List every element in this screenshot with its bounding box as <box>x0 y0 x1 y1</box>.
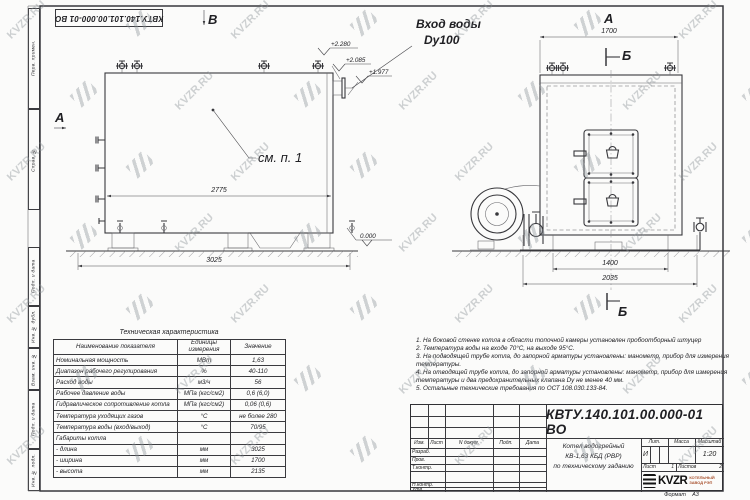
spec-table: Наименование показателя Единицы измерени… <box>53 339 286 478</box>
spec-col-header: Наименование показателя <box>54 340 178 355</box>
boiler-front-view: В А <box>54 10 482 270</box>
scale-header: Масштаб <box>695 438 724 446</box>
spec-cell: мм <box>178 444 231 455</box>
staff-utv: Утв. <box>412 487 444 492</box>
spec-row: - высотамм2135 <box>54 466 286 477</box>
spec-cell: Расход воды <box>54 377 178 388</box>
spec-col-header: Единицы измерения <box>178 340 231 355</box>
see-note-callout: см. п. 1 <box>212 109 303 165</box>
note-item-1: 1. На боковой стенке котла в области топ… <box>416 337 737 345</box>
spec-cell <box>178 433 231 444</box>
base-frame-side <box>520 235 700 250</box>
section-mark-b-top: Б <box>606 48 631 66</box>
spec-row: Температура воды (вход/выход)°С70/95 <box>54 422 286 433</box>
door-lock-icon <box>607 147 619 159</box>
staff-prov: Пров. <box>412 456 444 464</box>
base-frame-front <box>108 233 334 251</box>
rev-col-podp: Подп. <box>493 438 519 448</box>
spec-row: Диапазон рабочего регулирования%40-110 <box>54 366 286 377</box>
safety-valve-icon <box>664 63 676 75</box>
inlet-callout: Вход воды Dy100 <box>352 17 482 88</box>
note-item-2: 2. Температура воды на входе 70°С, на вы… <box>416 345 737 353</box>
rev-col-list: Лист <box>428 438 445 448</box>
elevation-zero: 0.000 <box>360 233 376 240</box>
side-view-a-label: А <box>603 11 613 26</box>
spring-logo-icon <box>643 474 656 488</box>
safety-valve-icon <box>557 63 569 75</box>
spec-cell: 70/95 <box>231 422 286 433</box>
spec-cell: 56 <box>231 377 286 388</box>
svg-text:2035: 2035 <box>601 275 618 282</box>
note-item-4: 4. На отводящей трубе котла, до запорной… <box>416 369 737 385</box>
water-inlet-flange <box>332 66 358 98</box>
svg-text:3025: 3025 <box>206 257 222 264</box>
technical-notes: 1. На боковой стенке котла в области топ… <box>416 337 737 393</box>
spec-cell: Номинальная мощность <box>54 355 178 366</box>
safety-valve-icon <box>258 61 270 73</box>
elevation-2085: +2.085 <box>346 57 366 64</box>
spec-row: Температура уходящих газов°Сне более 280 <box>54 410 286 421</box>
boiler-side-view: А 1700 Б <box>452 11 730 319</box>
safety-valve-icon <box>131 61 143 73</box>
spec-cell: °С <box>178 422 231 433</box>
drain-valves <box>117 221 355 233</box>
staff-razrab: Разраб. <box>412 448 444 456</box>
spec-col-header: Значение <box>231 340 286 355</box>
spec-row: - длинамм3025 <box>54 444 286 455</box>
spec-cell: - высота <box>54 466 178 477</box>
note-item-5: 5. Остальные технические требования по О… <box>416 385 737 393</box>
note-item-3: 3. На подводящей трубе котла, до запорно… <box>416 353 737 369</box>
spec-row: - ширинамм1700 <box>54 455 286 466</box>
dim-2775: 2775 <box>107 187 331 196</box>
spec-row: Габариты котла <box>54 433 286 444</box>
spec-cell: Гидравлическое сопротивление котла <box>54 399 178 410</box>
company-subtitle: КОТЕЛЬНЫЙ ЗАВОД РЭП <box>689 476 714 486</box>
scale-value: 1:20 <box>695 446 724 463</box>
spec-cell: Рабочее давление воды <box>54 388 178 399</box>
doc-number: КВТУ.140.101.00.000-01 ВО <box>546 405 724 438</box>
left-nozzles <box>96 137 105 225</box>
company-name: KVZR <box>658 475 687 487</box>
spec-cell: МПа (кгс/см2) <box>178 388 231 399</box>
spec-table-block: Техническая характеристика Наименование … <box>53 329 285 478</box>
side-drain-valve <box>694 218 706 250</box>
spec-cell: % <box>178 366 231 377</box>
svg-text:Б: Б <box>622 48 631 63</box>
spec-cell: 2135 <box>231 466 286 477</box>
elevation-1977: +1.977 <box>369 69 389 76</box>
spec-cell: Температура воды (вход/выход) <box>54 422 178 433</box>
spec-cell: 0,6 (6,0) <box>231 388 286 399</box>
mass-value <box>668 446 695 463</box>
spec-cell <box>231 433 286 444</box>
upper-furnace-door <box>574 130 638 178</box>
section-mark-b-bottom: Б <box>607 293 627 319</box>
rev-col-doc: N докум. <box>445 438 493 448</box>
title-block: КВТУ.140.101.00.000-01 ВО Изм. Лист N до… <box>410 404 723 491</box>
product-name: Котел водогрейный КВ-1,63 КБД (РВР) по т… <box>546 438 641 492</box>
spec-cell: - ширина <box>54 455 178 466</box>
spec-cell: Температура уходящих газов <box>54 410 178 421</box>
svg-text:2775: 2775 <box>210 187 227 194</box>
company-logo: KVZR КОТЕЛЬНЫЙ ЗАВОД РЭП <box>643 472 722 490</box>
safety-valve-icon <box>312 61 324 73</box>
spec-cell: не более 280 <box>231 410 286 421</box>
spec-cell: - длина <box>54 444 178 455</box>
spec-cell: мм <box>178 455 231 466</box>
spec-cell: м3/ч <box>178 377 231 388</box>
spec-cell: МПа (кгс/см2) <box>178 399 231 410</box>
mass-header: Масса <box>668 438 695 446</box>
elevation-2280: +2.280 <box>331 41 351 48</box>
format-label: Формат А3 <box>640 492 723 498</box>
rev-col-data: Дата <box>519 438 546 448</box>
spec-cell: Габариты котла <box>54 433 178 444</box>
spec-cell: 1,63 <box>231 355 286 366</box>
see-note-label: см. п. 1 <box>258 150 302 165</box>
inlet-label-line1: Вход воды <box>416 17 482 31</box>
lit-header: Лит. <box>641 438 668 446</box>
staff-tkontr: Т.контр. <box>412 464 444 471</box>
door-lock-icon <box>607 195 619 207</box>
spec-cell: Диапазон рабочего регулирования <box>54 366 178 377</box>
safety-valve-icon <box>546 63 558 75</box>
spec-cell: мм <box>178 466 231 477</box>
elevation-marks: +2.280 +2.085 +1.977 0.000 <box>318 41 392 246</box>
sheet-cell: Лист 1 <box>643 463 674 471</box>
lower-furnace-door <box>574 178 638 226</box>
spec-table-title: Техническая характеристика <box>53 329 285 336</box>
view-arrow-a-left-label: А <box>54 110 64 125</box>
safety-valve-icon <box>116 61 128 73</box>
rev-col-izm: Изм. <box>411 438 428 448</box>
spec-row: Расход водым3/ч56 <box>54 377 286 388</box>
view-arrow-b-label: В <box>208 12 217 27</box>
spec-cell: °С <box>178 410 231 421</box>
spec-cell: 0,06 (0,6) <box>231 399 286 410</box>
svg-text:1400: 1400 <box>602 260 618 267</box>
inlet-label-line2: Dy100 <box>424 33 460 47</box>
svg-text:1700: 1700 <box>601 28 617 35</box>
spec-row: Рабочее давление водыМПа (кгс/см2)0,6 (6… <box>54 388 286 399</box>
lit-value: И <box>641 446 650 463</box>
drawing-sheet: В А <box>0 0 750 500</box>
spec-cell: МВт <box>178 355 231 366</box>
sheets-cell: Листов 2 <box>678 463 722 471</box>
spec-row: Номинальная мощностьМВт1,63 <box>54 355 286 366</box>
ground-line-side <box>452 251 730 257</box>
spec-cell: 3025 <box>231 444 286 455</box>
spec-row: Гидравлическое сопротивление котлаМПа (к… <box>54 399 286 410</box>
spec-cell: 1700 <box>231 455 286 466</box>
spec-cell: 40-110 <box>231 366 286 377</box>
svg-text:Б: Б <box>618 304 627 319</box>
